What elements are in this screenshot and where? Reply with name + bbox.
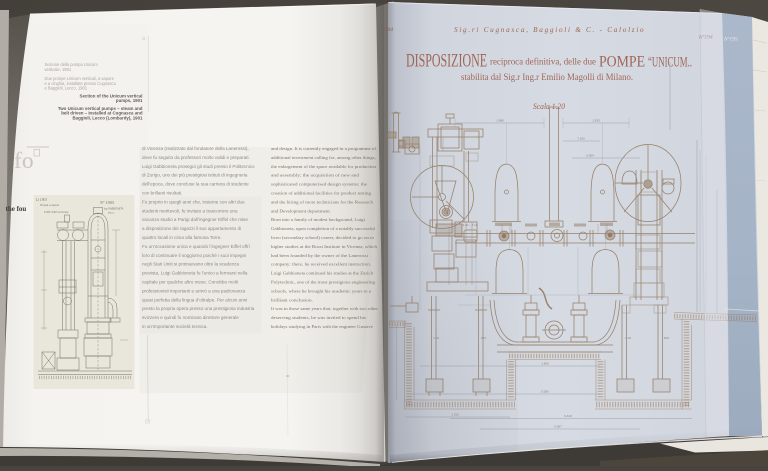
svg-text:stabilita dal Sig.r Ing.r Emil: stabilita dal Sig.r Ing.r Emilio Magolli… [461,73,633,83]
svg-text:1.980: 1.980 [496,119,504,123]
svg-text:pumps, 1901: pumps, 1901 [116,98,143,103]
svg-text:1.933: 1.933 [592,119,600,123]
svg-text:Nº 1905: Nº 1905 [99,200,115,205]
svg-text:dell’epoca, dove concluse la s: dell’epoca, dove concluse la sua carrier… [142,182,249,187]
svg-text:9.410: 9.410 [564,414,572,418]
svg-text:Baggioli, Lecco (Lombardy), 19: Baggioli, Lecco (Lombardy), 1901 [72,115,143,120]
svg-text:Scala 1.20: Scala 1.20 [533,102,565,111]
svg-text:7.100: 7.100 [577,137,585,141]
svg-text:studenti meritevoli, fu invita: studenti meritevoli, fu invitato a trasc… [142,208,238,213]
svg-text:a disposizione dei ragazzi il: a disposizione dei ragazzi il suo appart… [142,226,241,231]
svg-text:presto la propria opera presso: presto la propria opera presso una prest… [142,306,255,311]
svg-text:loro di continuare il soggiorn: loro di continuare il soggiorno poiché i… [142,253,246,258]
svg-text:Nº195: Nº195 [723,37,738,43]
svg-text:negli Stati Uniti si protraeva: negli Stati Uniti si protraevano oltre l… [142,262,239,267]
svg-text:Fu proprio in quegli anni che,: Fu proprio in quegli anni che, insieme c… [142,199,245,204]
svg-text:professionisti importanti e ar: professionisti importanti e arrivò a una… [142,288,246,293]
svg-text:brilliant conclusion.: brilliant conclusion. [271,297,313,302]
svg-text:5.364: 5.364 [586,154,594,158]
svg-text:the fou: the fou [6,205,27,213]
svg-text:prevista, Luigi Gabbioneta fu: prevista, Luigi Gabbioneta fu l’unico a … [142,271,248,276]
svg-text:fo: fo [14,148,34,174]
svg-text:verticale, 1901: verticale, 1901 [45,67,72,72]
svg-text:di Zurigo, uno dei più prestig: di Zurigo, uno dei più prestigiosi istit… [142,173,248,178]
svg-text:POMPE: POMPE [599,54,645,71]
svg-text:0.007: 0.007 [554,425,562,429]
svg-text:in un’importante società tecni: in un’importante società tecnica. [142,324,208,329]
svg-text:quasi perfetta della lingua d’: quasi perfetta della lingua d’oltralpe. … [142,297,247,302]
svg-text:dove fu seguito da professori: dove fu seguito da professori molto vali… [142,155,250,160]
svg-text:Li 1901: Li 1901 [35,198,47,202]
svg-text:UNICUM verticale: UNICUM verticale [44,210,69,214]
svg-text:DISPOSIZIONE: DISPOSIZIONE [406,52,487,72]
svg-text:con brillanti risultati.: con brillanti risultati. [142,191,182,196]
svg-text:Ing GABBIONETA: Ing GABBIONETA [104,208,124,211]
svg-text:vacanza studio a Parigi dall’i: vacanza studio a Parigi dall’ingegner Ei… [142,217,248,222]
svg-text:reciproca definitiva, delle du: reciproca definitiva, delle due [490,57,596,67]
svg-text:Luigi Gabbioneta proseguì gli: Luigi Gabbioneta proseguì gli studi pres… [142,164,255,169]
svg-text:º194: º194 [383,26,393,33]
svg-text:Milano: Milano [108,213,115,215]
svg-text:1.10: 1.10 [625,336,631,340]
svg-text:.504: .504 [663,336,669,340]
svg-text:svizzera e quindi fu nominato: svizzera e quindi fu nominato direttore … [142,315,239,320]
svg-text:22: 22 [142,37,146,41]
svg-text:5.000: 5.000 [541,390,549,394]
svg-text:di Vicenza (realizzato dal fon: di Vicenza (realizzato dal fondatore del… [142,146,249,151]
svg-text:and Development department.: and Development department. [271,208,331,213]
svg-text:1.650: 1.650 [541,362,549,366]
svg-text:e Baggioli, Lecco, 1901: e Baggioli, Lecco, 1901 [45,86,88,91]
svg-text:Fu un’occasione unica e quando: Fu un’occasione unica e quando l’ingegne… [142,244,250,249]
svg-text:Pompa a vapore: Pompa a vapore [40,203,60,207]
svg-text:quattro locali in cima alla fa: quattro locali in cima alla famosa Torre… [142,235,222,240]
svg-text:capitale per qualche altro mes: capitale per qualche altro mese. Conobbe… [142,280,238,285]
